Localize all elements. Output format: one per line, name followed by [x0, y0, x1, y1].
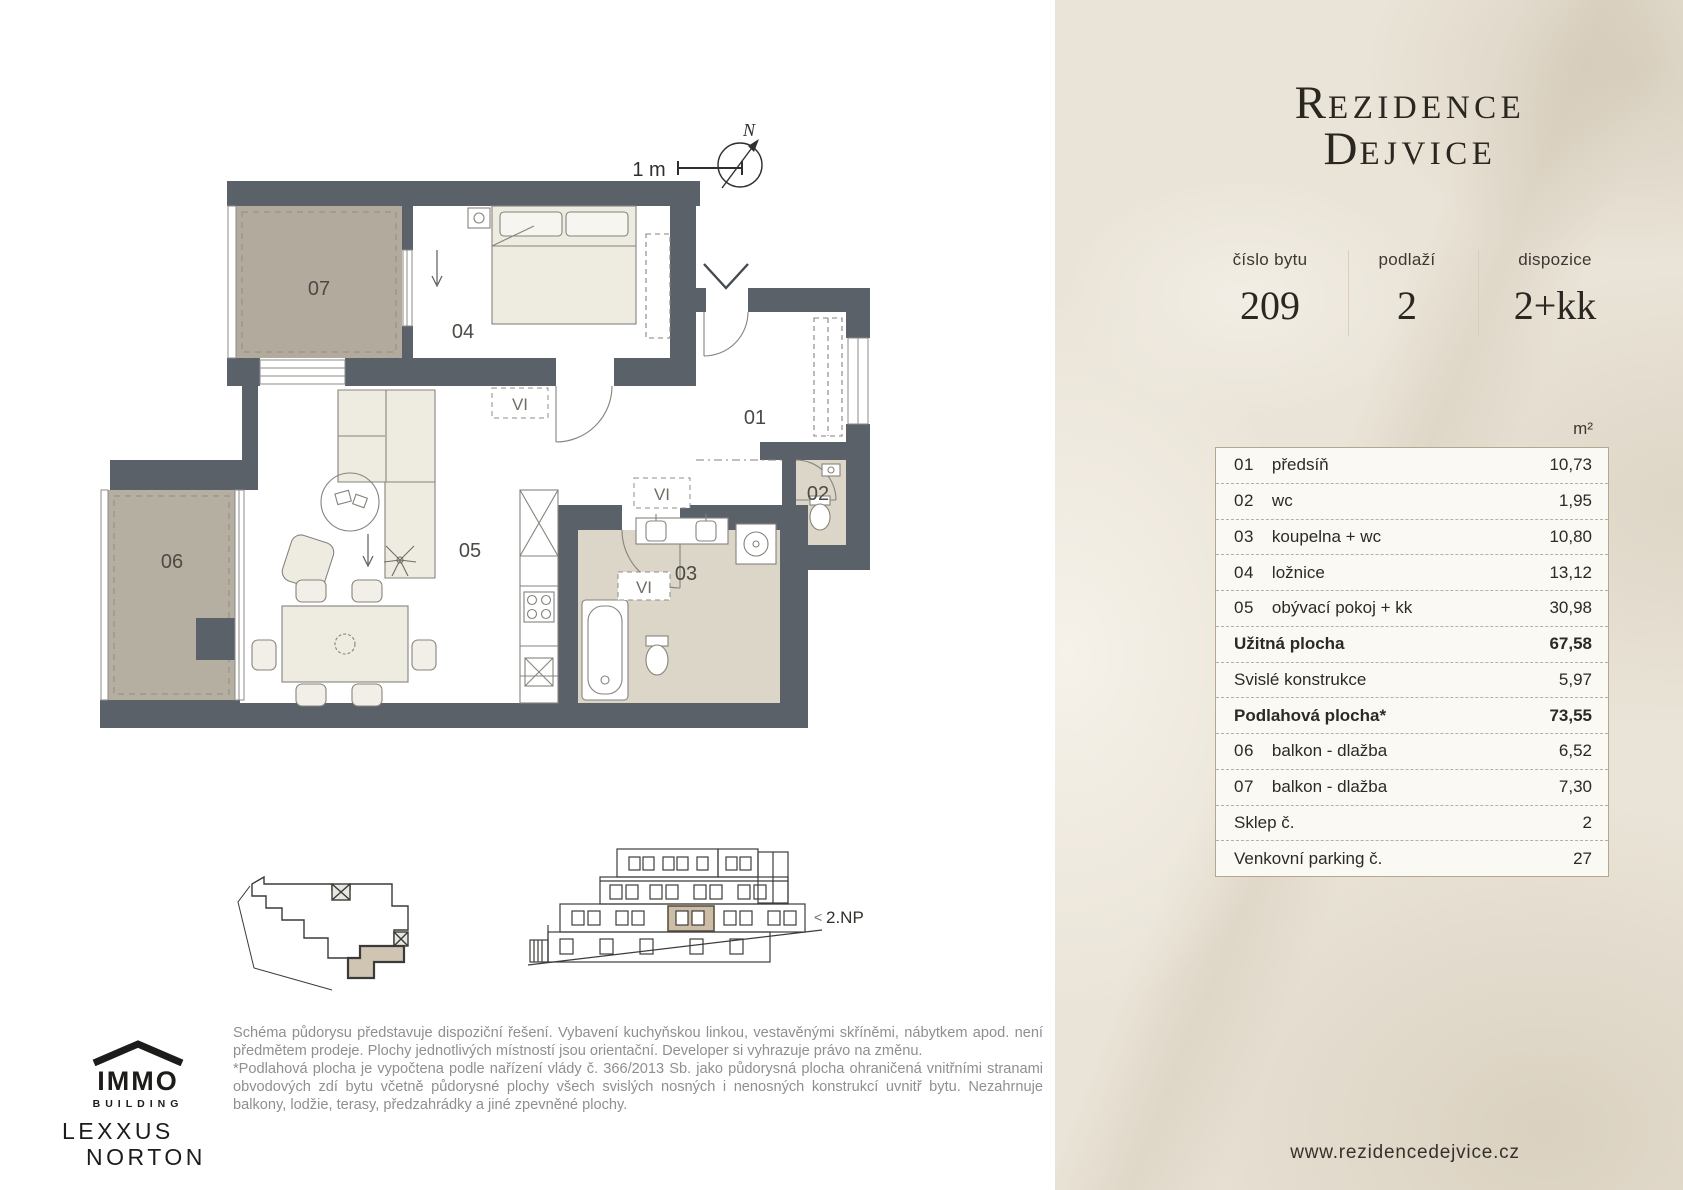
row-value: 5,97 [1559, 670, 1592, 690]
row-name: koupelna + wc [1272, 527, 1381, 547]
living-furniture [252, 390, 436, 706]
north-label: N [742, 120, 756, 140]
row-value: 2 [1583, 813, 1592, 833]
room-label-04: 04 [452, 321, 474, 343]
entrance-arrow-icon [704, 264, 748, 288]
table-row-total: Podlahová plocha*73,55 [1216, 698, 1608, 734]
table-row: 04ložnice13,12 [1216, 555, 1608, 591]
row-value: 27 [1573, 849, 1592, 869]
row-name: Užitná plocha [1234, 634, 1345, 654]
row-number: 01 [1234, 455, 1254, 475]
row-name: Venkovní parking č. [1234, 849, 1382, 869]
immo-building-logo: IMMO BUILDING [86, 1040, 190, 1110]
lexxus-logo-line2: NORTON [86, 1144, 206, 1170]
table-row: Venkovní parking č.27 [1216, 841, 1608, 876]
bedroom-furniture [468, 206, 670, 338]
room-label-06: 06 [161, 551, 183, 573]
table-row: 07balkon - dlažba7,30 [1216, 770, 1608, 806]
row-value: 7,30 [1559, 777, 1592, 797]
table-row: 01předsíň10,73 [1216, 448, 1608, 484]
disclaimer-paragraph-2: *Podlahová plocha je vypočtena podle nař… [233, 1060, 1043, 1114]
svg-text:VI: VI [654, 485, 670, 504]
row-name: Svislé konstrukce [1234, 670, 1366, 690]
project-title-line2: DEJVICE [1160, 126, 1660, 173]
row-value: 73,55 [1549, 706, 1592, 726]
elevation-highlighted-unit [668, 906, 714, 931]
building-elevation [528, 849, 822, 965]
website-link[interactable]: www.rezidencedejvice.cz [1105, 1142, 1683, 1164]
floor-block: podlaží 2 [1322, 250, 1492, 329]
lexxus-logo-line1: LEXXUS [62, 1118, 206, 1144]
area-table: 01předsíň10,73 02wc1,95 03koupelna + wc1… [1215, 447, 1609, 877]
table-row: 02wc1,95 [1216, 484, 1608, 520]
table-row: 06balkon - dlažba6,52 [1216, 734, 1608, 770]
level-arrow-icon: < [814, 909, 822, 925]
row-value: 30,98 [1549, 598, 1592, 618]
floor-label: podlaží [1322, 250, 1492, 270]
table-row: Svislé konstrukce5,97 [1216, 663, 1608, 699]
row-value: 10,80 [1549, 527, 1592, 547]
site-highlighted-unit [348, 946, 404, 978]
roof-icon [90, 1040, 186, 1066]
row-value: 6,52 [1559, 741, 1592, 761]
row-number: 04 [1234, 563, 1254, 583]
svg-text:VI: VI [636, 578, 652, 597]
room-label-01: 01 [744, 407, 766, 429]
flyer-page: 1 m N [0, 0, 1683, 1190]
room-label-07: 07 [308, 278, 330, 300]
site-key-plan [238, 877, 408, 990]
north-compass-icon [718, 139, 762, 188]
row-number: 06 [1234, 741, 1254, 761]
floor-value: 2 [1322, 282, 1492, 329]
scale-label: 1 m [632, 159, 665, 181]
table-row: 03koupelna + wc10,80 [1216, 520, 1608, 556]
row-number: 03 [1234, 527, 1254, 547]
layout-value: 2+kk [1470, 282, 1640, 329]
hall-wardrobe [814, 318, 842, 436]
disclaimer-text: Schéma půdorysu představuje dispoziční ř… [233, 1024, 1043, 1114]
disclaimer-paragraph-1: Schéma půdorysu představuje dispoziční ř… [233, 1024, 1043, 1060]
level-label: 2.NP [826, 908, 864, 927]
row-name: Sklep č. [1234, 813, 1294, 833]
info-panel: REZIDENCE DEJVICE číslo bytu 209 podlaží… [1055, 0, 1683, 1190]
table-row: Sklep č.2 [1216, 806, 1608, 842]
floor-plan-drawing: 1 m N [0, 0, 1055, 1190]
room-label-02: 02 [807, 483, 829, 505]
lexxus-norton-logo: LEXXUS NORTON [62, 1118, 206, 1171]
row-name: ložnice [1272, 563, 1325, 583]
row-number: 07 [1234, 777, 1254, 797]
immo-logo-name: IMMO [86, 1068, 190, 1095]
row-name: Podlahová plocha* [1234, 706, 1386, 726]
row-name: obývací pokoj + kk [1272, 598, 1412, 618]
row-value: 67,58 [1549, 634, 1592, 654]
row-value: 1,95 [1559, 491, 1592, 511]
room-label-05: 05 [459, 540, 481, 562]
row-value: 10,73 [1549, 455, 1592, 475]
project-title-line1: REZIDENCE [1160, 80, 1660, 127]
unit-header-m2: m² [1573, 419, 1593, 439]
table-row: 05obývací pokoj + kk30,98 [1216, 591, 1608, 627]
table-row-total: Užitná plocha67,58 [1216, 627, 1608, 663]
row-name: balkon - dlažba [1272, 741, 1387, 761]
row-name: předsíň [1272, 455, 1329, 475]
immo-logo-sub: BUILDING [86, 1098, 190, 1110]
svg-text:VI: VI [512, 395, 528, 414]
room-label-03: 03 [675, 563, 697, 585]
layout-block: dispozice 2+kk [1470, 250, 1640, 329]
row-value: 13,12 [1549, 563, 1592, 583]
layout-label: dispozice [1470, 250, 1640, 270]
row-number: 05 [1234, 598, 1254, 618]
row-name: balkon - dlažba [1272, 777, 1387, 797]
row-number: 02 [1234, 491, 1254, 511]
row-name: wc [1272, 491, 1293, 511]
kitchen-counter [520, 490, 558, 703]
